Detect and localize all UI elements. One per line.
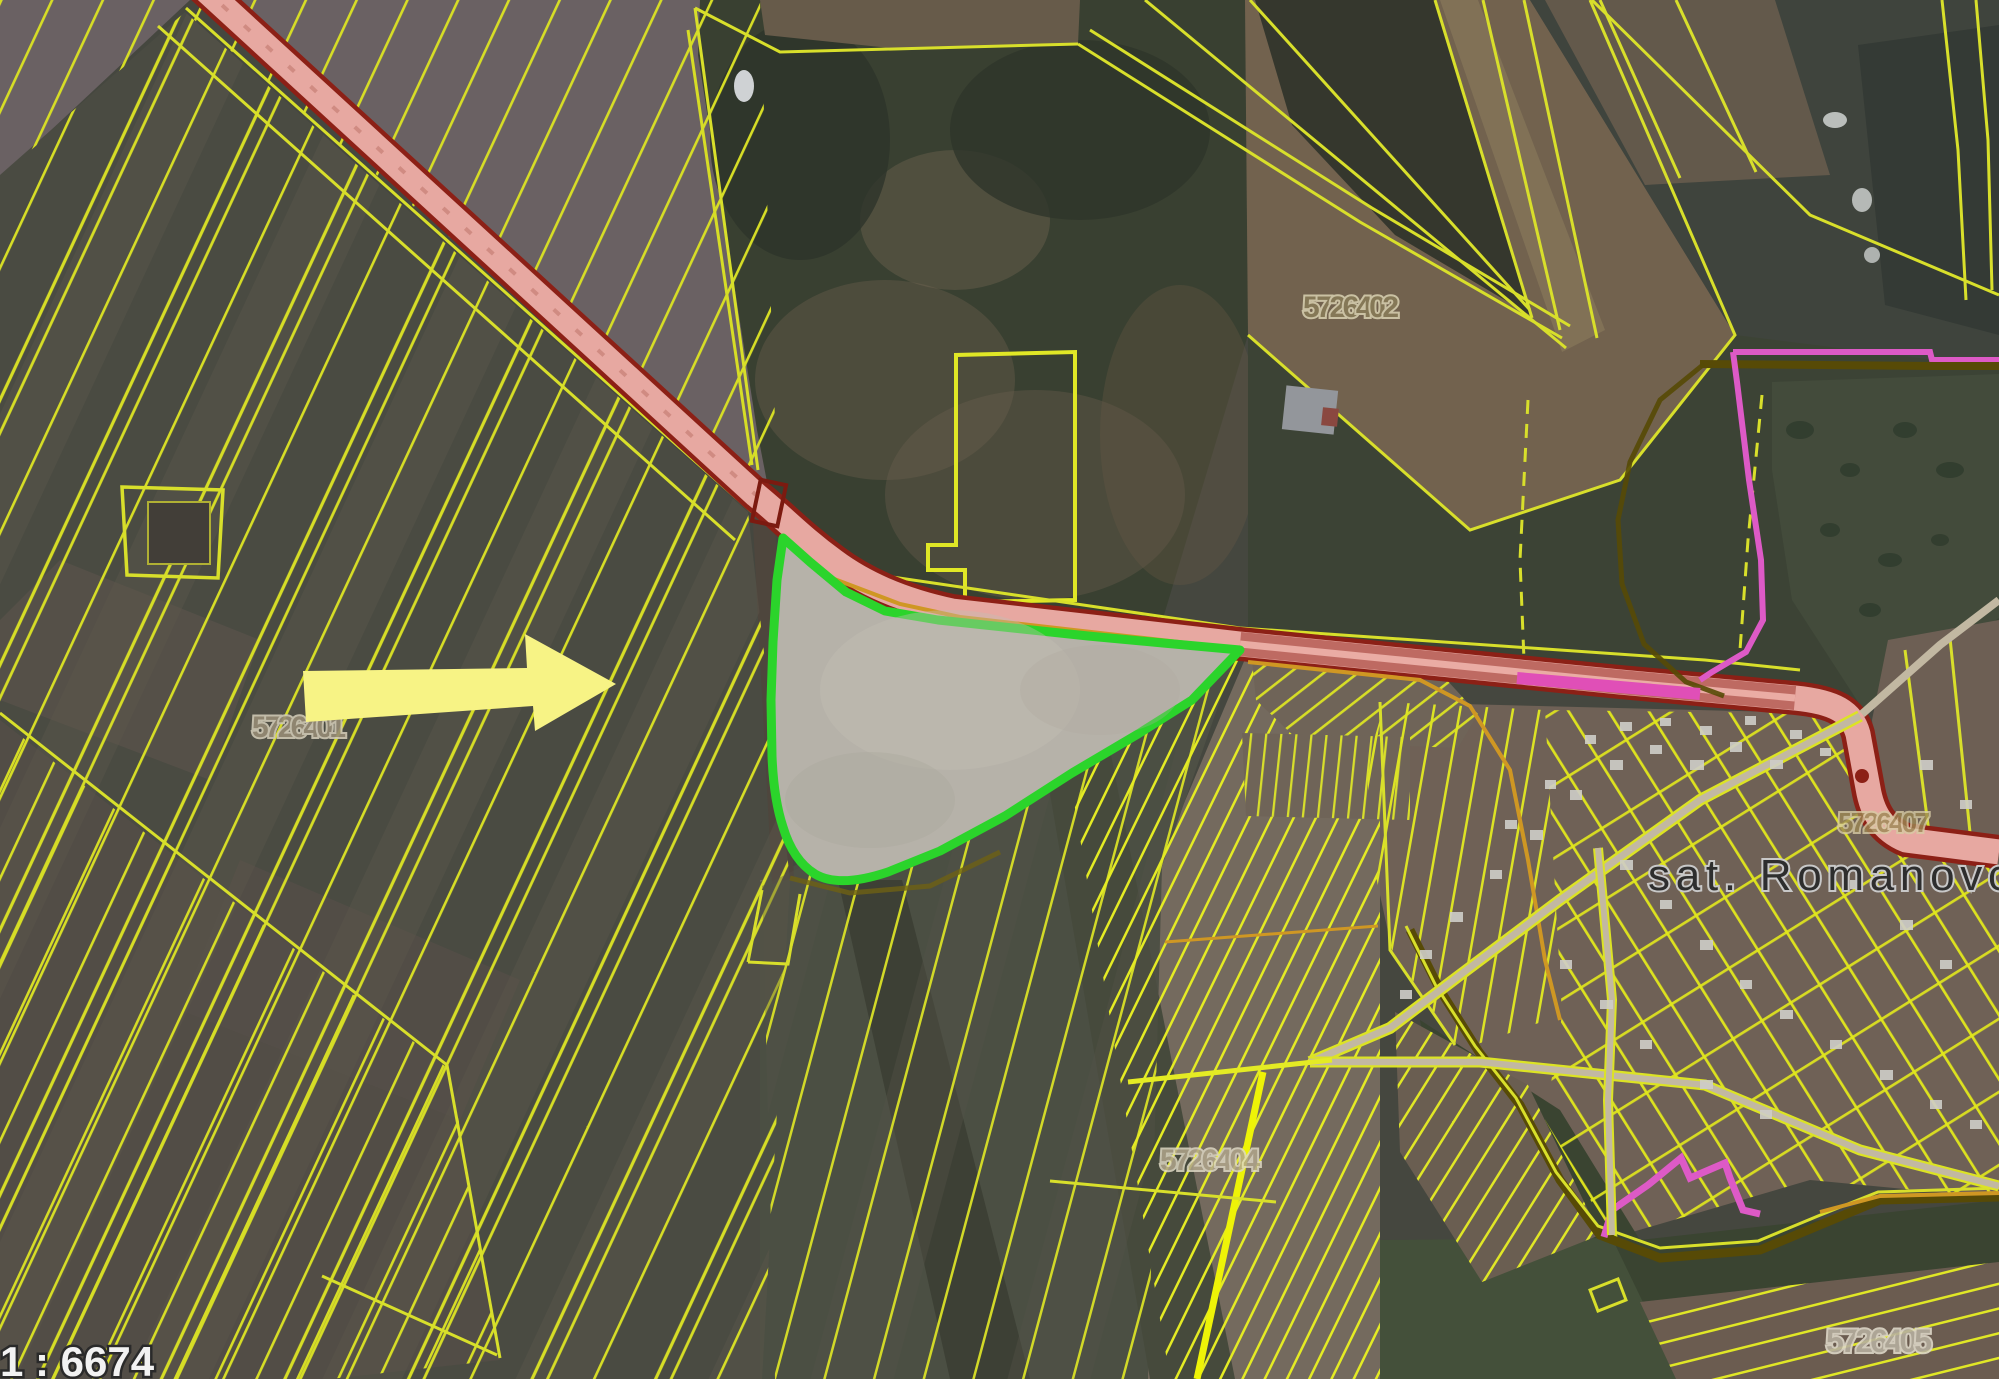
svg-text:5726407: 5726407	[1838, 807, 1930, 838]
svg-text:1 : 6674: 1 : 6674	[0, 1338, 155, 1379]
svg-text:5726405: 5726405	[1826, 1323, 1932, 1359]
svg-text:5726404: 5726404	[1160, 1144, 1260, 1177]
svg-text:5726402: 5726402	[1303, 291, 1399, 324]
